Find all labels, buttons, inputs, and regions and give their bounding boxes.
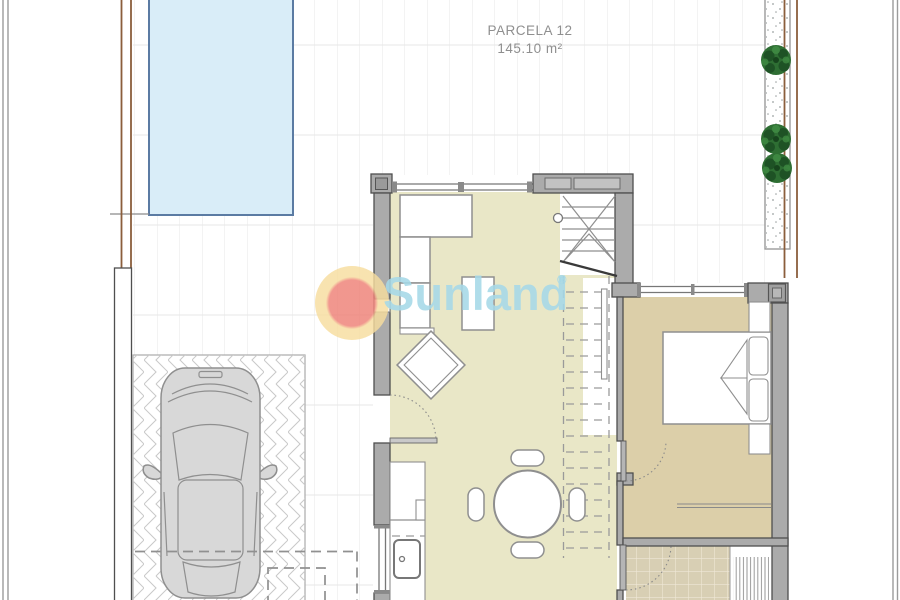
- plot-boundary-left: [3, 0, 8, 600]
- garden-wall-left: [115, 268, 132, 600]
- bed: [663, 332, 771, 424]
- kitchen-counter: [390, 462, 425, 600]
- dining-chair: [468, 488, 484, 521]
- plot-boundary-right: [893, 0, 898, 600]
- pillow: [749, 337, 768, 375]
- dining-chair: [569, 488, 585, 521]
- dining-chair: [511, 542, 544, 558]
- bathroom-floor: [626, 546, 730, 600]
- dining-chair: [511, 450, 544, 466]
- stair-newel: [554, 214, 563, 223]
- kitchen-sink: [394, 540, 420, 578]
- car: [143, 368, 277, 598]
- floor-plan-canvas: PARCELA 12 145.10 m² Sunland ®: [0, 0, 900, 600]
- nightstand: [749, 424, 770, 454]
- fence-left: [122, 0, 132, 268]
- stair-handrail: [602, 289, 608, 379]
- car-body: [161, 368, 260, 598]
- plant-icon: [761, 45, 791, 75]
- nightstand: [749, 302, 770, 332]
- parcel-area: 145.10 m²: [430, 40, 630, 58]
- pillow: [749, 379, 768, 421]
- dining-table: [494, 471, 561, 538]
- floor-plan-drawing: [0, 0, 900, 600]
- plant-icon: [762, 153, 792, 183]
- parcel-label: PARCELA 12 145.10 m²: [430, 22, 630, 58]
- coffee-table: [462, 277, 494, 330]
- shower: [730, 546, 772, 600]
- plant-icon: [761, 124, 791, 154]
- parcel-name: PARCELA 12: [430, 22, 630, 40]
